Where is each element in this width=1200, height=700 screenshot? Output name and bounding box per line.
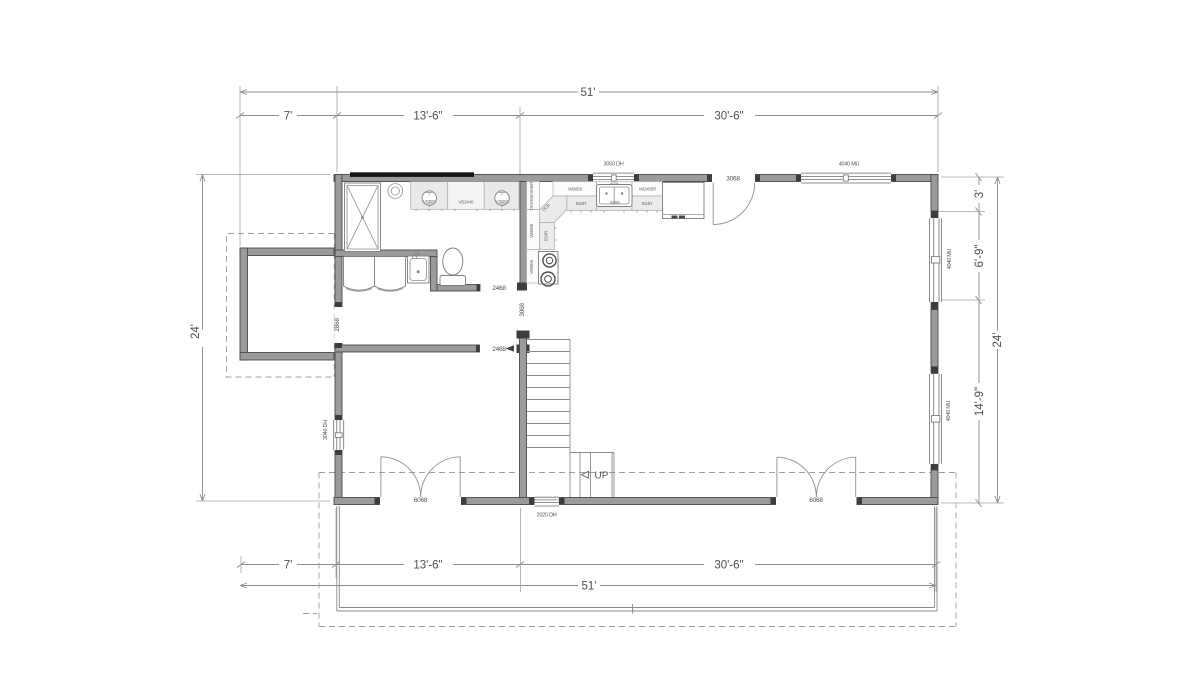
svg-text:B24R: B24R: [576, 201, 587, 206]
svg-text:24': 24': [190, 324, 202, 339]
svg-text:13'-6": 13'-6": [413, 560, 442, 572]
svg-text:30'-6": 30'-6": [714, 111, 743, 123]
svg-text:LS: LS: [414, 251, 419, 256]
svg-text:51': 51': [581, 87, 596, 99]
svg-text:6'-9": 6'-9": [974, 245, 986, 268]
svg-text:3068: 3068: [726, 176, 740, 183]
svg-text:6068: 6068: [809, 497, 823, 504]
svg-text:DISHWASHER: DISHWASHER: [529, 181, 534, 210]
svg-text:14'-9": 14'-9": [974, 387, 986, 416]
svg-text:4040 MU: 4040 MU: [946, 400, 952, 421]
svg-text:2468: 2468: [492, 346, 506, 353]
svg-text:B24R: B24R: [642, 201, 653, 206]
svg-text:WD456R: WD456R: [639, 187, 657, 192]
svg-text:UP: UP: [595, 471, 609, 482]
svg-text:30'-6": 30'-6": [714, 560, 743, 572]
svg-text:2020 DH: 2020 DH: [537, 513, 557, 519]
svg-text:3040 DH: 3040 DH: [323, 420, 329, 440]
svg-text:2868: 2868: [334, 318, 341, 332]
svg-text:VB2440: VB2440: [458, 199, 474, 204]
svg-text:51': 51': [582, 581, 597, 593]
svg-text:2468: 2468: [492, 285, 506, 292]
svg-text:WB656: WB656: [529, 259, 534, 274]
svg-text:7': 7': [284, 111, 293, 123]
svg-text:SB66: SB66: [609, 200, 620, 205]
svg-text:6068: 6068: [414, 497, 428, 504]
svg-text:24': 24': [992, 333, 1004, 348]
svg-text:4040 MU: 4040 MU: [839, 162, 860, 168]
svg-text:WB656: WB656: [529, 223, 534, 238]
svg-text:7': 7': [284, 560, 293, 572]
svg-text:3068: 3068: [519, 303, 526, 317]
svg-text:13'-6": 13'-6": [413, 111, 442, 123]
svg-text:3050 DH: 3050 DH: [604, 162, 624, 168]
svg-text:3': 3': [974, 190, 986, 199]
svg-text:WB656: WB656: [568, 187, 583, 192]
svg-text:4040 MU: 4040 MU: [947, 248, 953, 269]
svg-text:VSB82: VSB82: [496, 199, 510, 204]
svg-text:VSB82: VSB82: [423, 199, 437, 204]
svg-text:B24R: B24R: [544, 230, 549, 241]
